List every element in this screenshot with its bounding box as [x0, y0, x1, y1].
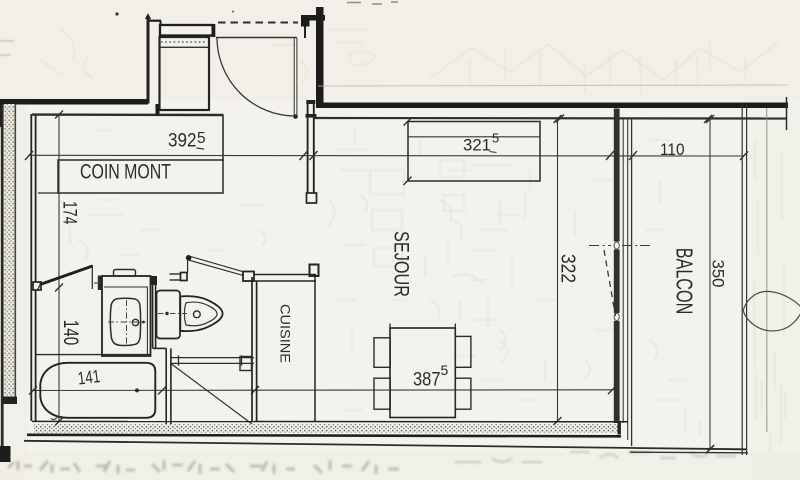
svg-text:321: 321	[463, 136, 491, 155]
svg-text:5: 5	[492, 131, 499, 146]
svg-text:174: 174	[59, 201, 80, 225]
svg-text:COIN MONT: COIN MONT	[80, 161, 171, 184]
svg-text:350: 350	[709, 260, 727, 288]
svg-text:110: 110	[660, 141, 685, 159]
svg-text:141: 141	[77, 366, 102, 389]
svg-text:BALCON: BALCON	[672, 248, 698, 315]
svg-text:CUISINE: CUISINE	[278, 304, 294, 363]
svg-text:387: 387	[413, 369, 441, 390]
svg-text:5: 5	[441, 362, 449, 378]
svg-text:5: 5	[197, 130, 206, 147]
svg-text:140: 140	[59, 320, 82, 346]
svg-text:322: 322	[557, 254, 579, 283]
svg-text:SEJOUR: SEJOUR	[390, 231, 413, 297]
svg-text:392: 392	[168, 131, 197, 152]
